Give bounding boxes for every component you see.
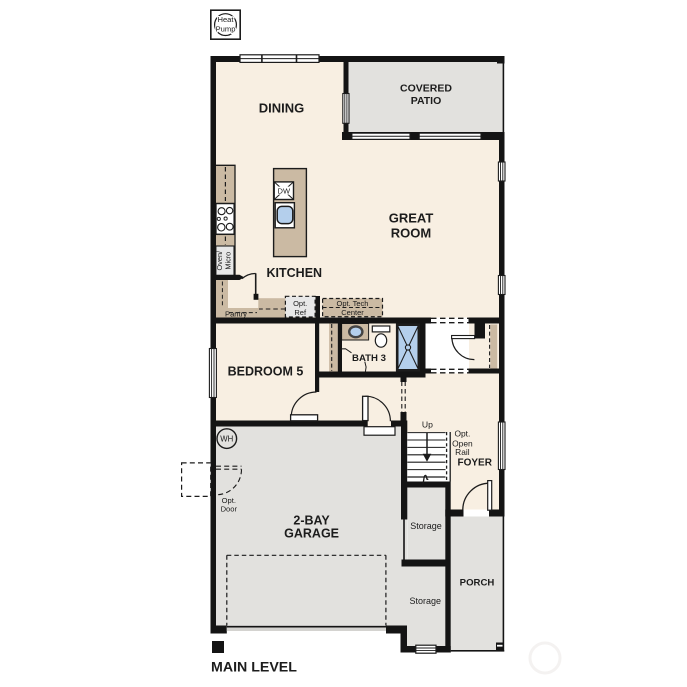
- svg-text:DW: DW: [278, 186, 291, 195]
- svg-text:PORCH: PORCH: [460, 577, 495, 588]
- svg-text:Storage: Storage: [410, 521, 442, 531]
- svg-text:Up: Up: [422, 420, 433, 430]
- svg-text:KITCHEN: KITCHEN: [267, 266, 323, 280]
- svg-text:Micro: Micro: [223, 252, 232, 270]
- svg-text:Rail: Rail: [455, 447, 470, 457]
- svg-text:2-BAY: 2-BAY: [293, 513, 330, 527]
- svg-text:BEDROOM 5: BEDROOM 5: [228, 364, 304, 378]
- svg-text:Door: Door: [221, 505, 238, 514]
- svg-text:MAIN LEVEL: MAIN LEVEL: [211, 660, 297, 676]
- svg-text:GARAGE: GARAGE: [284, 526, 339, 540]
- svg-text:Pump: Pump: [216, 25, 236, 34]
- svg-text:PATIO: PATIO: [411, 95, 442, 107]
- svg-text:Storage: Storage: [410, 596, 442, 606]
- svg-text:Center: Center: [341, 308, 364, 317]
- svg-text:Opt.: Opt.: [454, 428, 470, 438]
- svg-text:Heat: Heat: [217, 15, 234, 24]
- svg-text:DINING: DINING: [259, 101, 305, 116]
- svg-text:Ref: Ref: [294, 308, 307, 317]
- svg-text:ROOM: ROOM: [391, 226, 431, 241]
- svg-text:COVERED: COVERED: [400, 83, 452, 95]
- svg-text:BATH 3: BATH 3: [352, 353, 386, 364]
- svg-text:Opt. Tech: Opt. Tech: [337, 299, 369, 308]
- svg-text:FOYER: FOYER: [457, 458, 492, 469]
- svg-text:GREAT: GREAT: [389, 210, 434, 225]
- svg-text:Pantry: Pantry: [225, 309, 247, 318]
- svg-text:WH: WH: [220, 434, 233, 443]
- svg-text:Opt.: Opt.: [293, 299, 307, 308]
